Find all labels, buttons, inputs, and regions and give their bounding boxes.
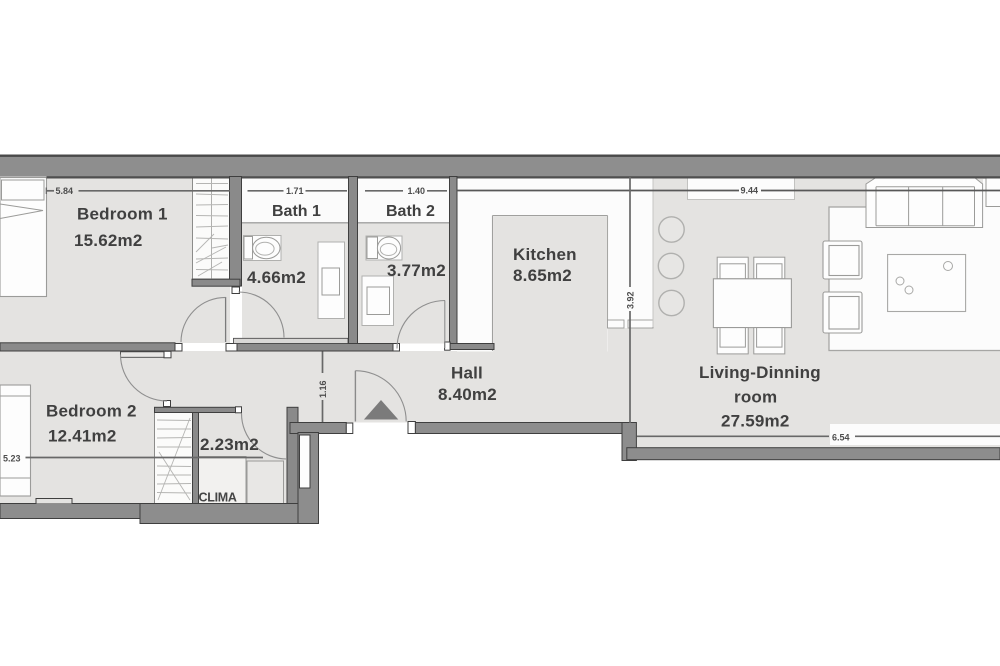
svg-text:4.66m2: 4.66m2: [247, 268, 306, 287]
svg-text:1.71: 1.71: [286, 186, 304, 196]
svg-text:15.62m2: 15.62m2: [74, 231, 143, 250]
svg-text:5.84: 5.84: [56, 186, 74, 196]
svg-text:Bedroom 1: Bedroom 1: [77, 205, 168, 224]
svg-text:Bath 1: Bath 1: [272, 203, 321, 220]
svg-text:3.92: 3.92: [626, 291, 636, 309]
svg-text:3.77m2: 3.77m2: [387, 261, 446, 280]
svg-text:Living-Dinning: Living-Dinning: [699, 363, 821, 382]
svg-text:room: room: [734, 388, 777, 407]
svg-text:Kitchen: Kitchen: [513, 245, 577, 264]
svg-text:Bath 2: Bath 2: [386, 203, 435, 220]
svg-text:8.40m2: 8.40m2: [438, 385, 497, 404]
svg-text:5.23: 5.23: [3, 454, 21, 464]
svg-text:1.40: 1.40: [408, 186, 426, 196]
svg-text:8.65m2: 8.65m2: [513, 266, 572, 285]
svg-text:6.54: 6.54: [832, 433, 850, 443]
svg-text:9.44: 9.44: [741, 186, 759, 196]
svg-text:Hall: Hall: [451, 364, 483, 383]
svg-text:1.16: 1.16: [318, 380, 328, 398]
svg-text:Bedroom 2: Bedroom 2: [46, 402, 137, 421]
svg-text:27.59m2: 27.59m2: [721, 412, 790, 431]
svg-text:12.41m2: 12.41m2: [48, 427, 117, 446]
svg-text:2.23m2: 2.23m2: [200, 435, 259, 454]
svg-text:CLIMA: CLIMA: [199, 491, 237, 505]
